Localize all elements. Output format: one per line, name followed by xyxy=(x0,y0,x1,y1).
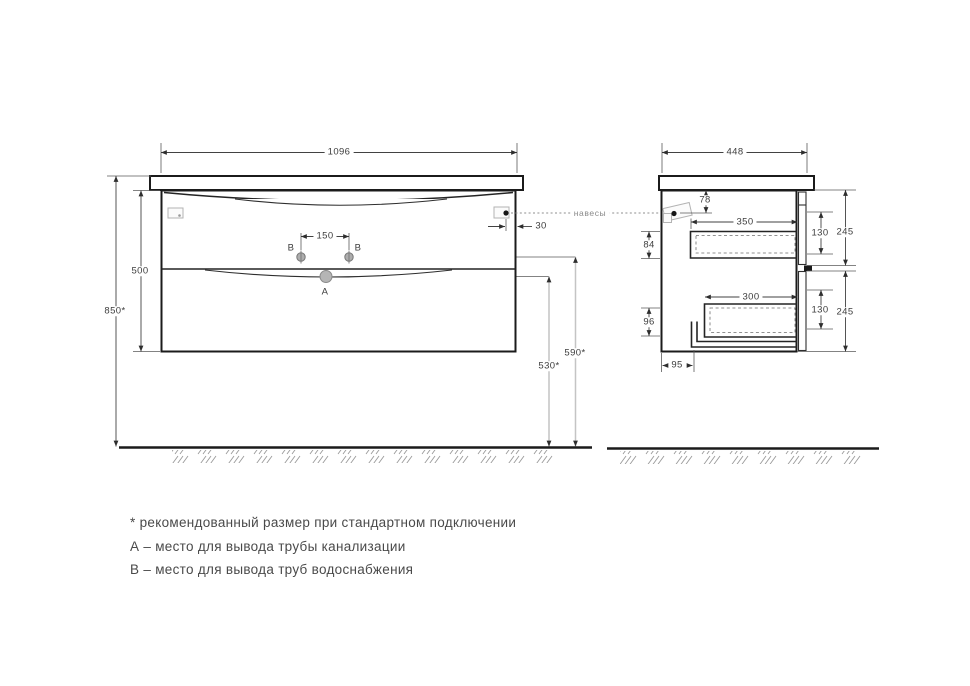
dim-top-front-height: 245 xyxy=(833,227,856,237)
hanger-icon-right xyxy=(494,207,509,218)
dim-bottom-front-height: 245 xyxy=(833,307,856,317)
dim-outlet-spacing: 150 xyxy=(313,231,336,241)
legend-note-b: В – место для вывода труб водоснабжения xyxy=(130,563,413,577)
dim-hanger-inset: 30 xyxy=(532,221,549,231)
floor-hatching-right xyxy=(620,451,866,464)
dim-bottom-drawer-back-height: 96 xyxy=(640,317,657,327)
dim-siphon-recess: 95 xyxy=(671,360,682,370)
bottom-drawer-front-panel xyxy=(799,272,807,351)
top-drawer-front-panel xyxy=(799,192,807,265)
side-countertop xyxy=(659,176,814,190)
drawing-canvas: 1096 850* 500 150 30 590* 530* навесы B … xyxy=(0,0,970,686)
dim-hanger-from-top: 78 xyxy=(696,195,713,205)
point-a-label: A xyxy=(322,287,329,297)
dim-top-drawer-inner-height: 130 xyxy=(808,228,831,238)
front-countertop xyxy=(150,176,523,190)
floor-hatching-left xyxy=(172,450,554,463)
side-view xyxy=(607,143,879,464)
dim-depth: 448 xyxy=(723,147,746,157)
dim-cabinet-height: 500 xyxy=(128,266,151,276)
drain-outlet-point-a xyxy=(320,271,332,283)
dim-top-drawer-depth: 350 xyxy=(733,217,756,227)
dim-water-outlet-height: 590* xyxy=(561,348,588,358)
hangers-note: навесы xyxy=(571,209,610,218)
dim-front-width: 1096 xyxy=(325,147,354,157)
point-b-left-label: B xyxy=(288,243,295,253)
legend-note-recommended: * рекомендованный размер при стандартном… xyxy=(130,516,516,530)
drawer-gap-detail xyxy=(804,266,812,272)
legend-note-a: А – место для вывода трубы канализации xyxy=(130,540,406,554)
dim-bottom-drawer-depth: 300 xyxy=(739,292,762,302)
dim-top-drawer-back-height: 84 xyxy=(640,240,657,250)
dim-overall-height: 850* xyxy=(101,306,128,316)
point-b-right-label: B xyxy=(355,243,362,253)
hanger-icon-left xyxy=(168,208,183,218)
dim-bottom-drawer-inner-height: 130 xyxy=(808,305,831,315)
front-view xyxy=(107,143,661,463)
technical-drawing xyxy=(0,0,970,686)
dim-drain-outlet-height: 530* xyxy=(535,361,562,371)
